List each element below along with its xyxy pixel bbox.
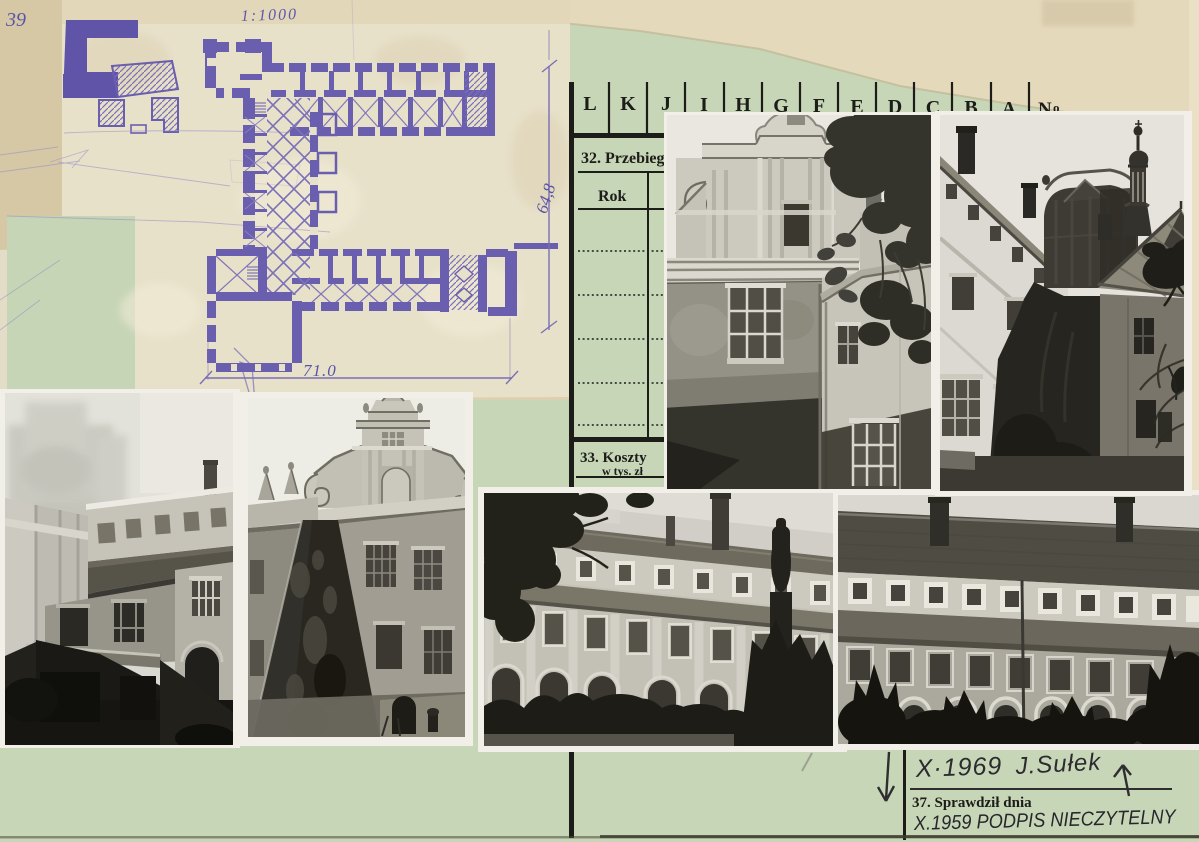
svg-text:1:1000: 1:1000 xyxy=(241,6,299,25)
svg-text:X·1969: X·1969 xyxy=(914,752,1003,783)
svg-text:w tys. zł: w tys. zł xyxy=(602,464,644,478)
svg-text:Rok: Rok xyxy=(598,188,627,205)
svg-text:L: L xyxy=(583,93,596,115)
svg-text:39: 39 xyxy=(5,9,26,31)
svg-text:J.Sułek: J.Sułek xyxy=(1014,748,1103,780)
svg-text:K: K xyxy=(620,93,636,115)
svg-text:J: J xyxy=(661,93,671,115)
svg-text:37. Sprawdził dnia: 37. Sprawdził dnia xyxy=(912,795,1032,811)
svg-text:71.0: 71.0 xyxy=(303,361,337,380)
svg-text:32. Przebieg: 32. Przebieg xyxy=(581,150,665,167)
